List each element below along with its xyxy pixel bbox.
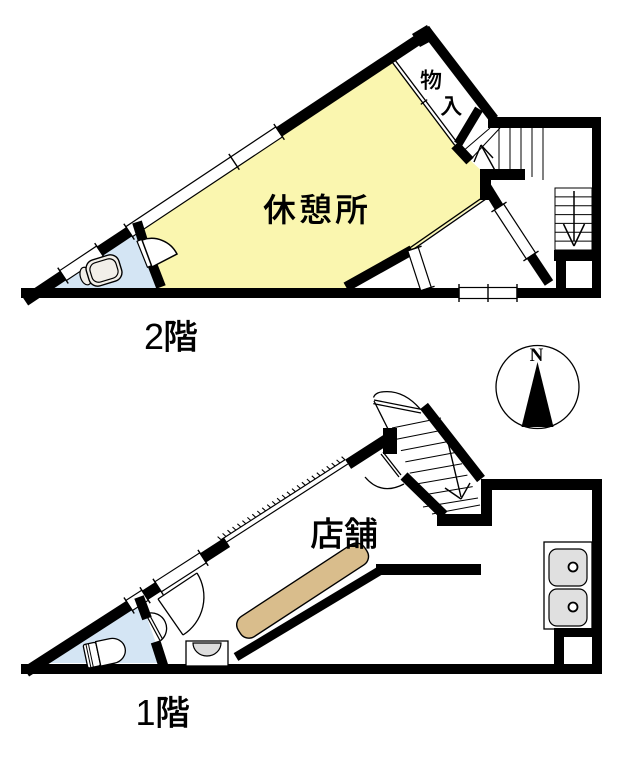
svg-text:1: 1 <box>136 692 156 733</box>
svg-text:2: 2 <box>144 316 164 357</box>
svg-text:N: N <box>530 345 544 366</box>
